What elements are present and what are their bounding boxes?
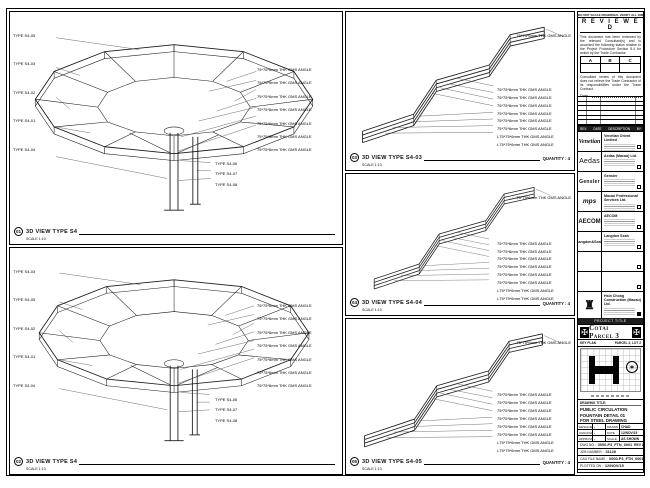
member-annotation: 75*75*6mm THK GMS ANGLE [497,281,571,285]
member-annotation: TYPE S4-08 [215,419,237,423]
consultant-logo: Venetian [578,132,602,151]
title-underline [424,305,539,306]
viewport-3d-view-s4-top: TYPE S4-05TYPE S4-03TYPE S4-02TYPE S4-01… [9,11,343,245]
view-quantity: QUANTITY : 4 [540,156,571,162]
consultant-address-lines [604,219,635,226]
title-underline [79,234,335,235]
title-block: DO NOT SCALE DRAWINGS. VERIFY ALL DIMENS… [577,11,644,473]
member-annotation: 75*75*6mm THK GMS ANGLE [257,384,337,388]
view-title: 3D VIEW TYPE S4 [25,459,79,466]
title-underline [424,160,539,161]
member-annotation: 75*75*6mm THK GMS ANGLE [497,425,571,429]
plotted-value: 12/NOV/15 [605,464,624,468]
revision-row [578,120,643,125]
key-plan-map: ✶ [580,348,641,392]
status-checkbox-a [581,64,601,72]
consultant-row: Venetian Venetian Orient Limited [578,132,643,152]
consultant-address-lines [604,144,635,151]
member-annotation: TYPE S4-06 [215,162,237,166]
desc-col: DESCRIPTION [608,127,630,131]
viewport-3d-view-s4-bottom: TYPE S4-03TYPE S4-05TYPE S4-02TYPE S4-01… [9,247,343,475]
detail-bubble: 02 [14,457,23,466]
key-plan-zone: PARCEL 3, LOT 2 [615,340,641,346]
drawing-info-table: DESIGNED - DRAWN CHAD CHECKED - DATE 12/… [578,424,643,442]
member-annotation: 75*75*6mm THK GMS ANGLE [497,242,571,246]
member-annotation: 75*75*6mm THK GMS ANGLE [497,417,571,421]
member-annotation: 75*75*6mm THK GMS ANGLE [497,112,571,116]
view-title: 3D VIEW TYPE S4-03 [361,155,424,162]
building-footprint [594,366,614,374]
member-annotation: 75*75*6mm THK GMS ANGLE [257,358,337,362]
view-label: 05 3D VIEW TYPE S4-05 QUANTITY : 4 SCALE… [350,457,571,472]
member-annotation: 75*75*6mm THK GMS ANGLE [497,433,571,437]
view-scale: SCALE 1:10 [362,308,571,312]
drawing-title-line3: FOR STEEL DRAWING [580,418,641,424]
member-size-annotations: 75*75*6mm THK GMS ANGLE75*75*6mm THK GMS… [257,68,337,153]
drawing-sheet: TYPE S4-05TYPE S4-03TYPE S4-02TYPE S4-01… [6,8,645,476]
job-number-row: JOB NUMBER : 31128 [578,449,643,456]
member-annotation: 75*75*6mm THK GMS ANGLE [257,81,337,85]
view-scale: SCALE 1:10 [362,467,571,471]
plotted-label: PLOTTED ON : [580,464,603,468]
viewport-3d-view-s4-03: 75*75*6mm THK GMS ANGLE 75*75*6mm THK GM… [345,11,575,171]
view-title: 3D VIEW TYPE S4-04 [361,300,424,307]
consultant-checkbox [637,165,642,170]
consultant-checkbox [637,145,642,150]
member-annotation: L75*75*6mm THK GMS ANGLE [497,449,571,453]
member-annotation: TYPE S4-04 [13,148,35,152]
member-annotation: 75*75*6mm THK GMS ANGLE [497,273,571,277]
consultant-logo: Langdon&Seah [578,232,602,251]
member-annotation: TYPE S4-01 [13,119,35,123]
rev-col: REV [580,127,587,131]
view-title: 3D VIEW TYPE S4 [25,229,79,236]
status-checkbox-c [620,64,640,72]
view-scale: SCALE 1:10 [26,237,339,241]
consultant-logo: Aedas [578,152,602,171]
member-annotation: TYPE S4-03 [13,270,35,274]
view-label: 03 3D VIEW TYPE S4-03 QUANTITY : 4 SCALE… [350,153,571,168]
consultant-name-text: Langdon Seah [604,234,641,238]
consultant-checkbox [637,285,642,290]
member-size-annotations: 75*75*6mm THK GMS ANGLE75*75*6mm THK GMS… [497,242,571,302]
by-col: BY [637,127,641,131]
member-annotation: 75*75*6mm THK GMS ANGLE [257,148,337,152]
reviewed-stamp: R E V I E W E D This document has been r… [578,18,643,97]
consultant-logo: Gensler [578,172,602,191]
consultant-address-lines [604,239,635,246]
view-label: 02 3D VIEW TYPE S4 SCALE 1:10 [14,457,339,472]
viewport-3d-view-s4-05: 75*75*6mm THK GMS ANGLE 75*75*6mm THK GM… [345,318,575,475]
member-annotation: 75*75*6mm THK GMS ANGLE [257,122,337,126]
member-annotation: 75*75*6mm THK GMS ANGLE [257,371,337,375]
consultant-logo: ♜ [578,292,602,318]
member-type-annotations: TYPE S4-05TYPE S4-03TYPE S4-02TYPE S4-01… [13,34,35,152]
consultant-name-text: Gensler [604,174,641,178]
member-annotation: TYPE S4-05 [13,34,35,38]
key-plan: KEY PLAN PARCEL 3, LOT 2 ✶ [578,340,643,400]
status-option-a: A [581,57,601,64]
member-annotation: TYPE S4-05 [13,298,35,302]
north-arrow-icon: ✶ [626,361,638,373]
member-annotation: 75*75*6mm THK GMS ANGLE [516,196,571,200]
consultant-rows: Venetian Venetian Orient Limited Aedas A… [578,132,643,318]
member-annotation: 75*75*6mm THK GMS ANGLE [257,344,337,348]
consultant-row: Langdon&Seah Langdon Seah [578,232,643,252]
view-label: 04 3D VIEW TYPE S4-04 QUANTITY : 4 SCALE… [350,298,571,313]
rev-value: REV A [634,443,643,447]
member-annotation: L75*75*6mm THK GMS ANGLE [497,289,571,293]
member-annotation: 75*75*6mm THK GMS ANGLE [497,127,571,131]
consultant-logo: AECOM [578,212,602,231]
mast-annotations: TYPE S4-06TYPE S4-07TYPE S4-08 [215,162,237,187]
member-annotation: TYPE S4-01 [13,355,35,359]
member-annotation: 75*75*6mm THK GMS ANGLE [497,257,571,261]
cad-file-row: CAD FILE NAME : 0000-P3_FTN_0001.dwg [578,456,643,463]
member-annotation: 75*75*6mm THK GMS ANGLE [497,104,571,108]
member-size-annotations: 75*75*6mm THK GMS ANGLE75*75*6mm THK GMS… [497,88,571,148]
member-annotation: TYPE S4-07 [215,172,237,176]
view-quantity: QUANTITY : 4 [540,301,571,307]
consultant-logo [578,252,602,271]
member-type-annotations: TYPE S4-03TYPE S4-05TYPE S4-02TYPE S4-01… [13,270,35,388]
consultant-name-text: AECOM [604,214,641,218]
member-annotation: 75*75*6mm THK GMS ANGLE [516,341,571,345]
consultant-row: Aedas Aedas (Macau) Ltd. [578,152,643,172]
consultant-logo [578,272,602,291]
member-annotation: 75*75*6mm THK GMS ANGLE [257,135,337,139]
view-quantity: QUANTITY : 4 [540,460,571,466]
consultant-row: mps Macau Professional Services Ltd. [578,192,643,212]
member-annotation: L75*75*6mm THK GMS ANGLE [497,143,571,147]
consultant-checkbox [637,312,642,317]
consultant-checkbox [637,205,642,210]
member-annotation: 75*75*6mm THK GMS ANGLE [257,68,337,72]
mast-annotations: TYPE S4-06TYPE S4-07TYPE S4-08 [215,398,237,423]
status-option-c: C [620,57,640,64]
drawing-title-box: DRAWING TITLE: PUBLIC CIRCULATION FOUNTA… [578,400,643,424]
drawing-title-label: DRAWING TITLE: [580,401,641,406]
member-annotation: TYPE S4-06 [215,398,237,402]
consultant-row [578,252,643,272]
member-annotation: 75*75*6mm THK GMS ANGLE [257,304,337,308]
title-underline [424,464,539,465]
cad-file-value: 0000-P3_FTN_0001.dwg [609,457,643,461]
consultant-address-lines [604,179,635,186]
plotted-row: PLOTTED ON : 12/NOV/15 [578,463,643,470]
consultant-name-text: Aedas (Macau) Ltd. [604,154,641,158]
dwg-no-value: 0000-P3_FTN_0001 [598,443,632,447]
consultant-name-text: Hsin Chong Construction (Macau) Ltd. [604,294,641,307]
date-col: DATE [593,127,601,131]
consultant-address-lines [604,308,635,315]
member-annotation: 75*75*6mm THK GMS ANGLE [257,317,337,321]
view-quantity [335,235,339,236]
member-annotation: TYPE S4-03 [13,62,35,66]
member-annotation: 75*75*6mm THK GMS ANGLE [497,401,571,405]
title-underline [79,464,335,465]
view-title: 3D VIEW TYPE S4-05 [361,459,424,466]
reviewed-stamp-body: This document has been reviewed by the r… [580,33,641,56]
view-scale: SCALE 1:10 [26,467,339,471]
member-annotation: TYPE S4-02 [13,91,35,95]
member-size-annotations: 75*75*6mm THK GMS ANGLE75*75*6mm THK GMS… [257,304,337,389]
member-annotation: 75*75*6mm THK GMS ANGLE [497,119,571,123]
member-annotation: 75*75*6mm THK GMS ANGLE [516,34,571,38]
revision-history-rows [578,97,643,126]
member-annotation: 75*75*6mm THK GMS ANGLE [497,393,571,397]
reviewed-stamp-disclaimer: Consultant review of this document does … [580,73,641,92]
status-option-b: B [601,57,621,64]
member-annotation: 75*75*6mm THK GMS ANGLE [257,108,337,112]
member-annotation: TYPE S4-08 [215,183,237,187]
member-annotation: 75*75*6mm THK GMS ANGLE [497,409,571,413]
member-annotation: TYPE S4-07 [215,408,237,412]
project-name: Cotai Parcel 3 [589,324,632,340]
title-block-spacer [578,470,643,472]
view-quantity [335,465,339,466]
project-name-row: ✠ Cotai Parcel 3 ✠ [578,325,643,340]
dwg-no-label: DWG NO : [580,443,596,447]
status-checkbox-b [601,64,621,72]
dwg-no-row: DWG NO : 0000-P3_FTN_0001 REV A [578,442,643,449]
job-number-label: JOB NUMBER : [580,450,603,454]
consultant-address-lines [604,159,635,166]
consultant-row: ♜ Hsin Chong Construction (Macau) Ltd. [578,292,643,318]
member-annotation: 75*75*6mm THK GMS ANGLE [497,96,571,100]
consultant-row: AECOM AECOM [578,212,643,232]
member-annotation: 75*75*6mm THK GMS ANGLE [497,250,571,254]
member-annotation: L75*75*6mm THK GMS ANGLE [497,441,571,445]
member-annotation: 75*75*6mm THK GMS ANGLE [257,331,337,335]
consultant-name-text: Venetian Orient Limited [604,134,641,143]
cad-file-label: CAD FILE NAME : [580,457,607,461]
view-label: 01 3D VIEW TYPE S4 SCALE 1:10 [14,227,339,242]
detail-bubble: 01 [14,227,23,236]
consultant-name-text: Macau Professional Services Ltd. [604,194,641,203]
detail-bubble: 05 [350,457,359,466]
reviewed-stamp-title: R E V I E W E D [580,19,641,33]
member-size-annotations: 75*75*6mm THK GMS ANGLE75*75*6mm THK GMS… [497,393,571,453]
consultant-checkbox [637,265,642,270]
consultant-checkbox [637,185,642,190]
emblem-icon: ✠ [632,327,641,338]
review-status-options: A B C [580,56,641,73]
job-number-value: 31128 [605,450,615,454]
member-annotation: 75*75*6mm THK GMS ANGLE [257,95,337,99]
consultant-checkbox [637,225,642,230]
consultant-row [578,272,643,292]
member-annotation: TYPE S4-04 [13,384,35,388]
key-plan-label: KEY PLAN [580,340,596,346]
detail-bubble: 03 [350,153,359,162]
consultant-address-lines [604,204,635,211]
consultant-logo: mps [578,192,602,211]
viewport-3d-view-s4-04: 75*75*6mm THK GMS ANGLE 75*75*6mm THK GM… [345,173,575,316]
emblem-icon: ✠ [580,327,589,338]
view-scale: SCALE 1:10 [362,163,571,167]
detail-bubble: 04 [350,298,359,307]
member-annotation: TYPE S4-02 [13,327,35,331]
member-annotation: 75*75*6mm THK GMS ANGLE [497,265,571,269]
key-plan-scale-bar [591,395,630,398]
consultant-row: Gensler Gensler [578,172,643,192]
member-annotation: 75*75*6mm THK GMS ANGLE [497,88,571,92]
member-annotation: L75*75*6mm THK GMS ANGLE [497,135,571,139]
consultant-checkbox [637,245,642,250]
